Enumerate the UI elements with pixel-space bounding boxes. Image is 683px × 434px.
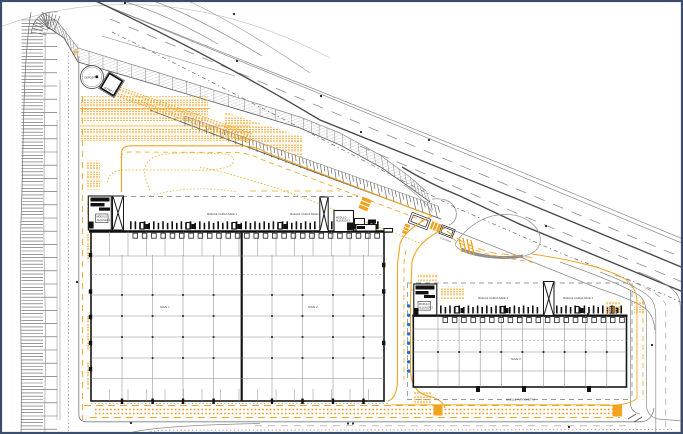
svg-text:DEPOSITO: DEPOSITO [85, 76, 98, 79]
svg-text:NAVE 2: NAVE 2 [308, 305, 318, 309]
svg-text:MUELLE FURGONETAS: MUELLE FURGONETAS [506, 398, 535, 402]
svg-text:ALQUILER 3: ALQUILER 3 [419, 306, 433, 309]
svg-text:NAVE 3: NAVE 3 [511, 357, 521, 361]
svg-text:ALQUILER 1: ALQUILER 1 [97, 219, 111, 222]
svg-text:MUELLE CARGA NAVE 2: MUELLE CARGA NAVE 2 [290, 212, 320, 216]
svg-text:NAVE 1: NAVE 1 [160, 305, 170, 309]
svg-text:MUELLE CARGA NAVE 3: MUELLE CARGA NAVE 3 [563, 296, 593, 300]
svg-text:MUELLE CARGA NAVE 1: MUELLE CARGA NAVE 1 [207, 212, 237, 216]
svg-text:MUELLE CARGA NAVE 3: MUELLE CARGA NAVE 3 [478, 296, 508, 300]
svg-text:ALQUILER 2: ALQUILER 2 [336, 220, 350, 223]
